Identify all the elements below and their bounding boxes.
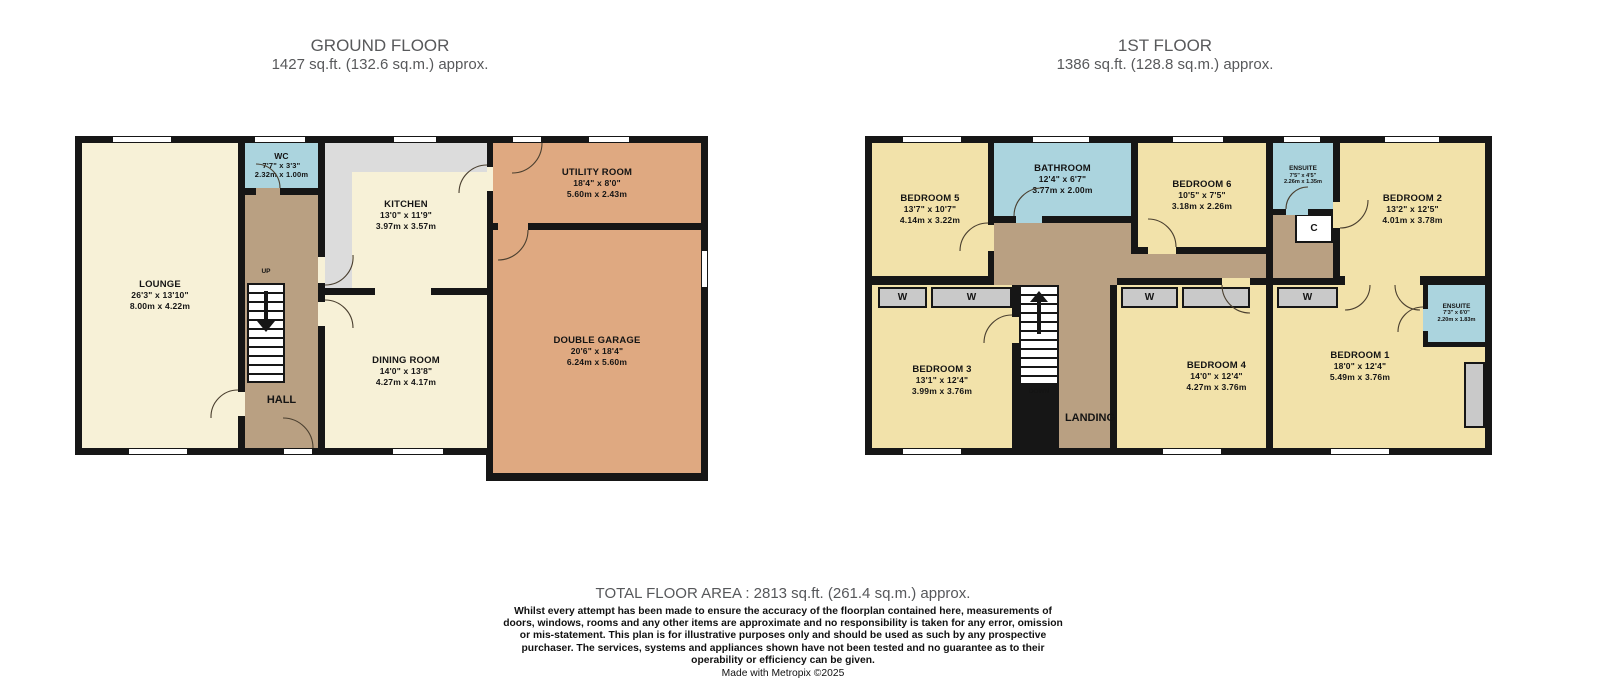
credit-text: Made with Metropix ©2025: [483, 668, 1083, 679]
disclaimer-text: Whilst every attempt has been made to en…: [498, 606, 1068, 667]
floorplan-page: GROUND FLOOR 1427 sq.ft. (132.6 sq.m.) a…: [0, 0, 1600, 696]
total-floor-area: TOTAL FLOOR AREA : 2813 sq.ft. (261.4 sq…: [483, 585, 1083, 602]
